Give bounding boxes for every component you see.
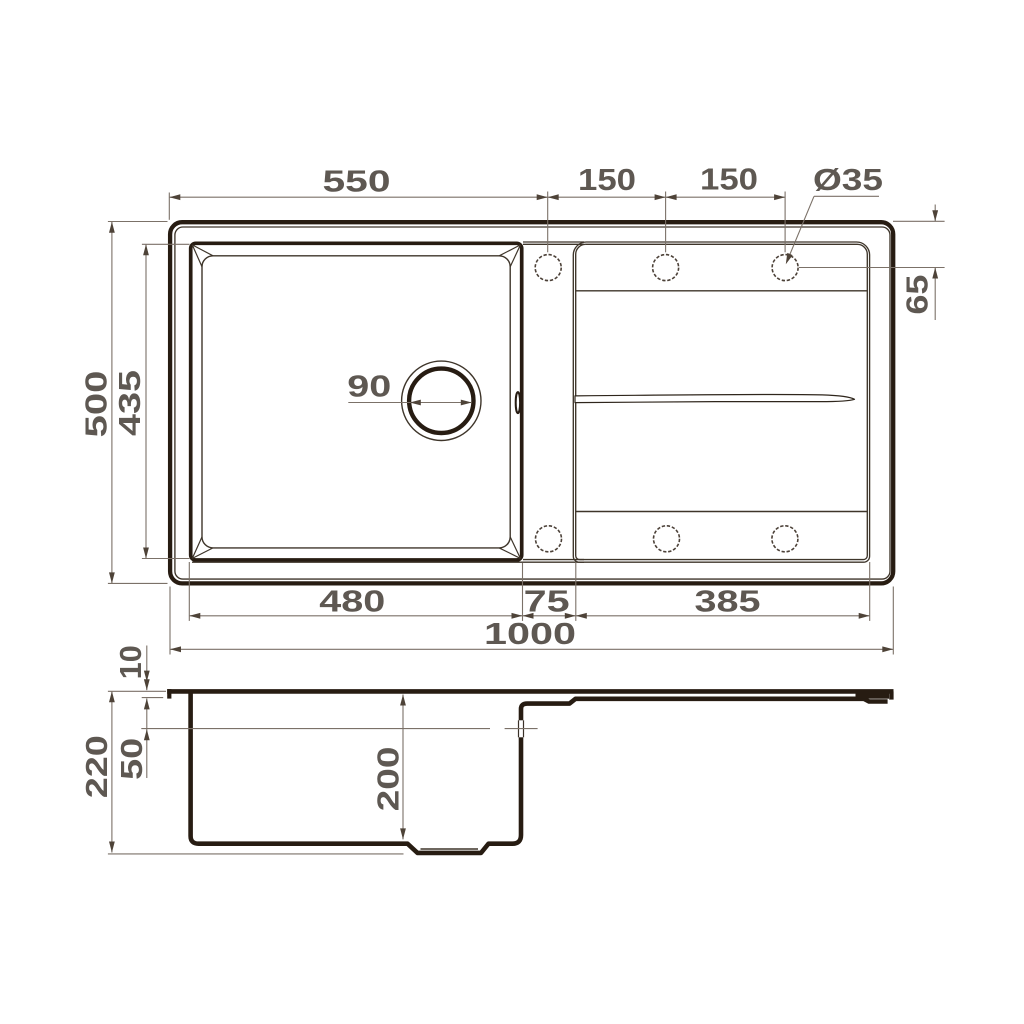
svg-text:200: 200 [371, 746, 406, 811]
svg-text:10: 10 [113, 645, 148, 679]
svg-text:150: 150 [578, 162, 636, 197]
svg-text:1000: 1000 [484, 616, 576, 651]
svg-text:90: 90 [347, 368, 391, 403]
svg-text:385: 385 [695, 583, 761, 618]
svg-text:500: 500 [79, 371, 114, 438]
svg-text:65: 65 [900, 275, 935, 315]
svg-text:220: 220 [79, 735, 114, 798]
svg-text:75: 75 [524, 583, 570, 618]
svg-text:550: 550 [323, 163, 391, 198]
svg-text:Ø35: Ø35 [813, 162, 883, 197]
svg-text:150: 150 [700, 162, 758, 197]
svg-text:50: 50 [114, 738, 149, 780]
svg-text:480: 480 [319, 583, 385, 618]
svg-text:435: 435 [112, 370, 147, 436]
